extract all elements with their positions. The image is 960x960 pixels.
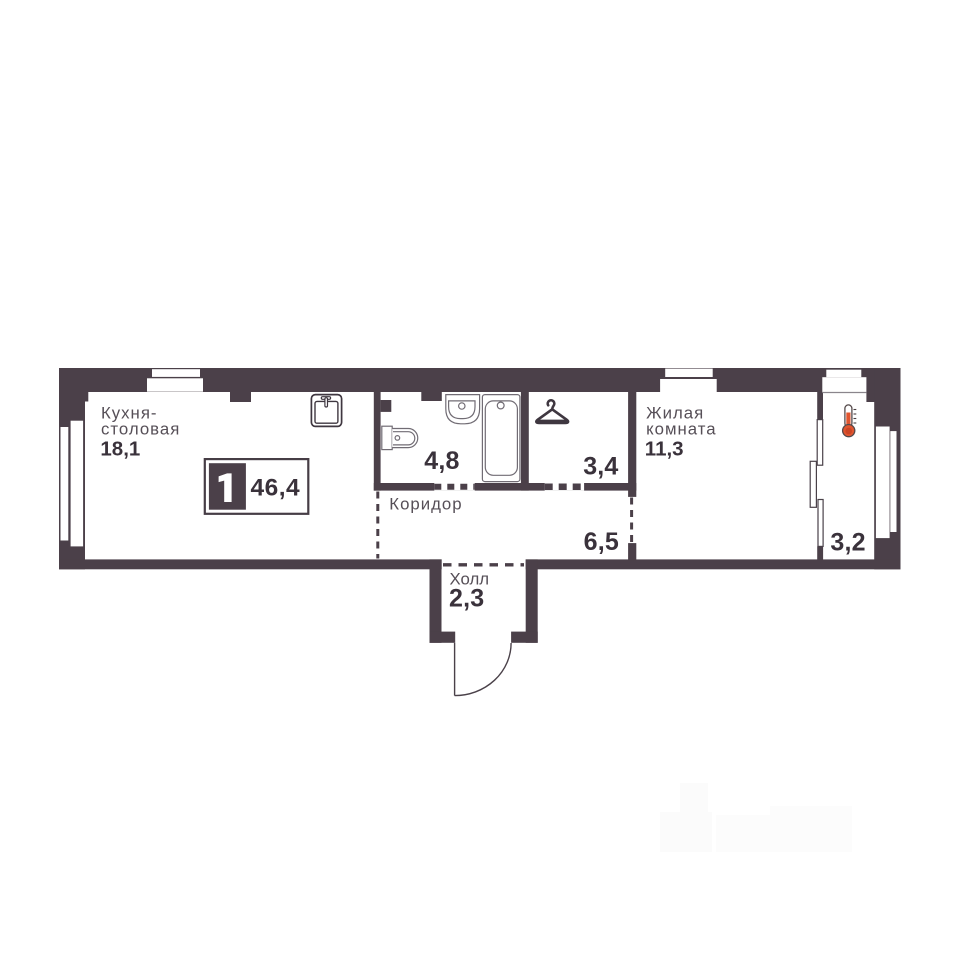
svg-text:4,8: 4,8 [424, 447, 459, 475]
svg-text:6,5: 6,5 [584, 528, 619, 556]
svg-text:11,3: 11,3 [645, 437, 684, 460]
svg-text:столовая: столовая [101, 419, 180, 438]
svg-text:2,3: 2,3 [449, 585, 484, 613]
svg-text:3,4: 3,4 [583, 452, 618, 480]
svg-text:46,4: 46,4 [251, 475, 301, 502]
svg-text:3,2: 3,2 [830, 529, 865, 557]
svg-text:Коридор: Коридор [389, 495, 462, 514]
svg-text:комната: комната [646, 419, 716, 438]
svg-text:18,1: 18,1 [100, 437, 140, 460]
